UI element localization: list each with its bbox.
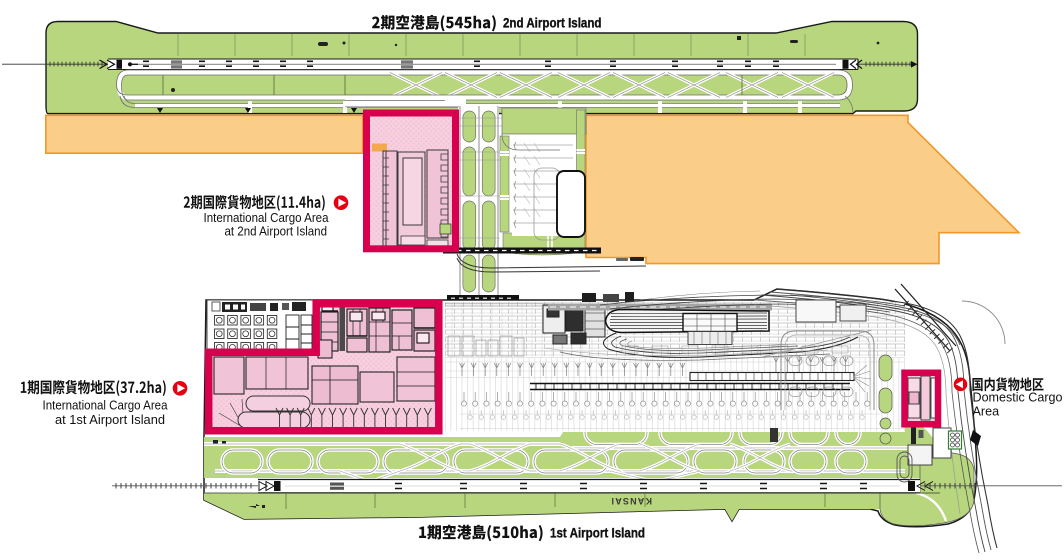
svg-text:1st Airport Island: 1st Airport Island [550,525,645,540]
svg-text:Domestic Cargo: Domestic Cargo [973,391,1063,405]
svg-text:at 2nd Airport Island: at 2nd Airport Island [225,224,328,238]
svg-text:2nd Airport Island: 2nd Airport Island [503,15,602,30]
svg-text:KANSAI: KANSAI [610,496,652,506]
svg-text:Area: Area [973,405,1000,419]
svg-text:at 1st Airport Island: at 1st Airport Island [55,413,165,427]
svg-text:International Cargo Area: International Cargo Area [43,399,168,413]
svg-text:International Cargo Area: International Cargo Area [204,211,329,225]
